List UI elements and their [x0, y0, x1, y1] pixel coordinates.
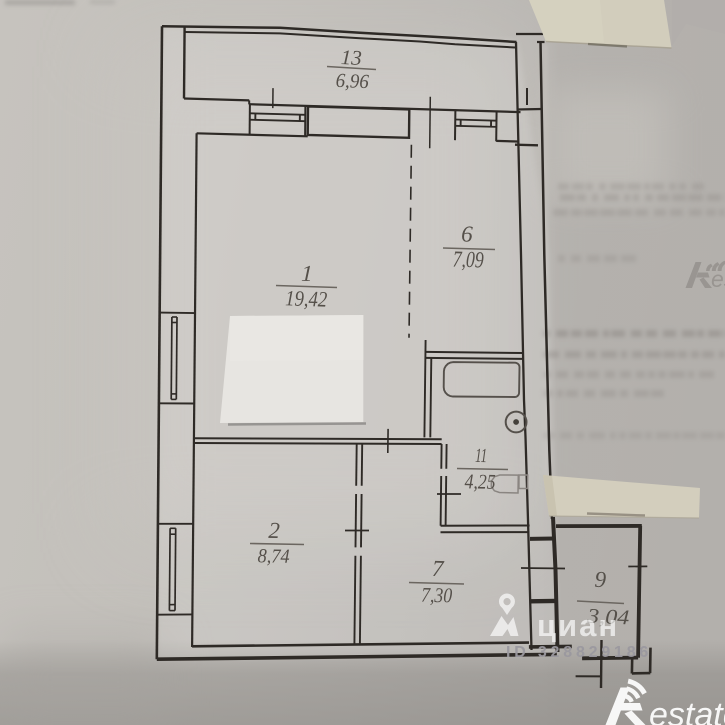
svg-text:estate: estate — [649, 696, 725, 725]
svg-text:ID 328829186: ID 328829186 — [506, 644, 652, 661]
svg-text:estate: estate — [711, 266, 725, 292]
svg-text:циан: циан — [537, 608, 619, 643]
